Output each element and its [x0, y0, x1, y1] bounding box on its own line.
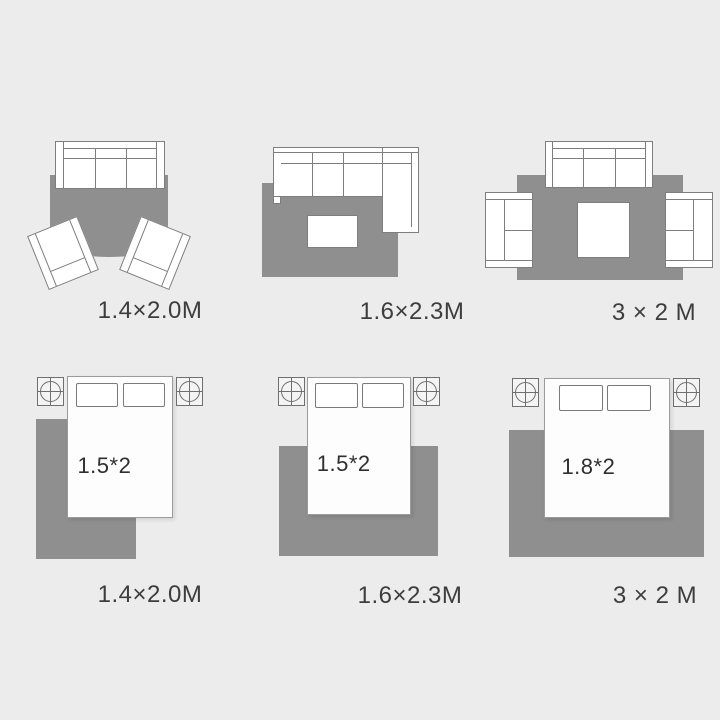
sofa-back-line: [552, 148, 646, 149]
size-label-living-2: 1.6×2.3M: [327, 298, 497, 326]
sofa-seat-divider: [504, 230, 532, 231]
sofa-back-line: [693, 199, 694, 261]
bed-size-label: 1.5*2: [310, 451, 377, 477]
sectional-chaise: [382, 147, 419, 233]
pillow: [76, 383, 118, 407]
pillow: [315, 383, 358, 408]
sofa-armrest-line: [486, 199, 532, 200]
bed: 1.8*2: [544, 378, 670, 518]
sofa-back-line: [63, 148, 157, 149]
bed: 1.5*2: [67, 376, 173, 518]
chair-back-line: [51, 257, 85, 271]
size-label-living-1: 1.4×2.0M: [65, 297, 235, 325]
size-label-bedroom-2: 1.6×2.3M: [325, 582, 495, 610]
size-label-living-3: 3 × 2 M: [569, 299, 720, 327]
nightstand: [176, 377, 203, 406]
lamp-cross-line: [426, 378, 427, 405]
bed-size-label: 1.5*2: [70, 453, 139, 479]
sofa-back-line: [63, 158, 157, 159]
side-sofa-left: [485, 192, 533, 268]
sofa-seat-divider: [126, 148, 127, 188]
sectional-body: [273, 147, 383, 197]
sofa-armrest-line: [666, 199, 712, 200]
chair-back-line: [133, 257, 167, 271]
pillow: [607, 385, 651, 411]
sofa-seat-divider: [583, 148, 584, 187]
sofa-seat-divider: [95, 148, 96, 188]
three-seat-sofa: [545, 141, 653, 188]
lamp-cross-line: [686, 379, 687, 406]
sofa-seat-divider: [666, 230, 693, 231]
sofa-armrest-line: [486, 260, 532, 261]
size-label-bedroom-1: 1.4×2.0M: [65, 581, 235, 609]
rug-size-guide: 1.5*2 1.5*2 1.8*2: [0, 0, 720, 720]
nightstand: [673, 378, 700, 407]
sofa-back-line: [552, 158, 646, 159]
nightstand: [413, 377, 440, 406]
sectional-sofa: [273, 147, 419, 233]
sofa-seat-divider: [615, 148, 616, 187]
sofa-armrest-line: [666, 260, 712, 261]
pillow: [123, 383, 165, 407]
lamp-cross-line: [50, 378, 51, 405]
lamp-cross-line: [525, 379, 526, 406]
nightstand: [278, 377, 305, 406]
pillow: [362, 383, 404, 408]
sofa-seat-divider: [312, 152, 313, 197]
lamp-cross-line: [189, 378, 190, 405]
size-label-bedroom-3: 3 × 2 M: [570, 582, 720, 610]
chair-armrest-line: [161, 234, 183, 286]
nightstand: [37, 377, 64, 406]
bed: 1.5*2: [307, 377, 411, 515]
chair-armrest-line: [35, 234, 57, 286]
pillow: [559, 385, 603, 411]
three-seat-sofa: [55, 141, 165, 189]
coffee-table: [577, 202, 630, 258]
sofa-seat-divider: [343, 152, 344, 197]
sofa-back-line: [281, 163, 411, 164]
sofa-back-line: [273, 152, 419, 153]
side-sofa-right: [665, 192, 713, 268]
nightstand: [512, 378, 539, 407]
chaise-armrest-line: [411, 153, 412, 227]
lamp-cross-line: [291, 378, 292, 405]
bed-size-label: 1.8*2: [547, 454, 629, 480]
